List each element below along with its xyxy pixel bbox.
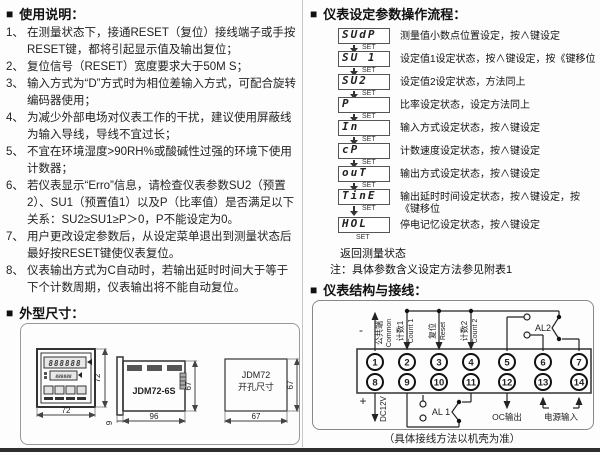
dc12v-label: DC12V (379, 395, 388, 421)
side-height-dim: 67 (184, 381, 193, 390)
down-arrow-icon (350, 211, 358, 216)
terminal-number: 8 (372, 378, 377, 389)
side-depth-dim: 9 (105, 420, 114, 425)
section-bullet-icon: ■ (6, 8, 13, 20)
contact-dot (557, 337, 561, 341)
display2-pointer-icon (78, 372, 82, 378)
flow-step-desc: 比率设定状态，设定方法同上 (400, 100, 598, 112)
cutout-model-label: JDM72 (242, 370, 271, 380)
terminal-number: 5 (504, 358, 510, 369)
usage-item-number: 6、 (6, 178, 27, 229)
power-input-wires (543, 398, 579, 408)
front-display-digits: 888888 (48, 359, 81, 368)
junction-dot (437, 309, 441, 313)
led-display-sudp: SUdP (338, 28, 390, 44)
led-text: TinE (339, 190, 389, 202)
terminal-number: 7 (576, 358, 581, 369)
dimensions-drawing: 888888 888888 72 72 JDM72-6 (21, 324, 299, 444)
terminal-number: 12 (502, 378, 513, 389)
usage-item-text: 用户更改设定参数后，从设定菜单退出到测量状态后最好按RESET键使仪表复位。 (27, 229, 298, 263)
led-text: In (339, 121, 389, 133)
side-width-dim: 96 (150, 412, 159, 421)
cutout-height-dim: 67 (286, 380, 295, 389)
section-bullet-icon: ■ (6, 307, 13, 319)
usage-item-number: 3、 (6, 76, 27, 110)
contact-dot (457, 400, 461, 404)
flow-step-desc: 测量值小数点位置设定，按∧键设定 (400, 31, 598, 43)
bottom-rule (0, 448, 600, 452)
terminal-row-bottom: 8 9 10 11 12 13 14 (367, 374, 587, 390)
usage-item: 5、不宜在环境湿度>90RH%或酸碱性过强的环境下使用计数器； (6, 144, 298, 178)
terminal-number: 1 (372, 358, 378, 369)
usage-item: 7、用户更改设定参数后，从设定菜单退出到测量状态后最好按RESET键使仪表复位。 (6, 229, 298, 263)
front-width-dim: 72 (62, 406, 71, 415)
dimensions-section-header: ■ 外型尺寸： (6, 303, 84, 322)
oc-output-label: OC输出 (492, 412, 522, 422)
junction-dot (469, 309, 473, 313)
set-key-label: SET (356, 234, 370, 241)
set-key-label: SET (362, 67, 376, 74)
set-key-label: SET (362, 205, 376, 212)
flow-step-desc: 计数速度设定状态，按∧键设定 (400, 146, 598, 158)
usage-item: 8、仪表输出方式为C自动时，若输出延时时间大于等于下个计数周期，仪表输出将不能自… (6, 263, 298, 297)
usage-item-number: 4、 (6, 110, 27, 144)
terminal-row-top: 1 2 3 4 5 6 7 (367, 354, 587, 370)
flow-step-desc: 停电记忆设定状态，按∧键设定 (400, 220, 598, 232)
count2-label-cn: 计数2 (459, 320, 469, 341)
usage-list: 1、在测量状态下，接通RESET（复位）接线端子或手按RESET键，都将引起显示… (6, 25, 298, 297)
flow-connector: SET (350, 206, 390, 215)
led-display-p: P (338, 97, 390, 113)
led-text: HOL (339, 218, 389, 230)
terminal-number: 11 (466, 378, 477, 389)
led-text: SU 1 (339, 52, 389, 64)
column-divider (302, 0, 303, 447)
led-display-time: TinE (338, 189, 390, 205)
flow-step-desc: 输入方式设定状态，按∧键设定 (400, 123, 598, 135)
led-display-hol: HOL (338, 217, 390, 233)
usage-item-text: 仪表输出方式为C自动时，若输出延时时间大于等于下个计数周期，仪表输出将不能自动复… (27, 263, 298, 297)
usage-item-number: 7、 (6, 229, 27, 263)
usage-item-text: 若仪表显示“Erro”信息，请检查仪表参数SU2（预置2）、SU1（预置值1）以… (27, 178, 298, 229)
display1-pointer-icon (87, 359, 92, 365)
flow-section-header: ■ 仪表设定参数操作流程： (310, 4, 466, 23)
count2-label-en: Count 2 (472, 319, 479, 344)
usage-item: 4、为减少外部电场对仪表工作的干扰，建议使用屏蔽线为输入导线，导线不宜过长； (6, 110, 298, 144)
power-input-label: 电源输入 (544, 412, 579, 422)
flow-title: 仪表设定参数操作流程： (323, 4, 466, 23)
dimensions-drawing-box: 888888 888888 72 72 JDM72-6 (20, 323, 300, 445)
usage-item-text: 输入方式为“D”方式时为相位差输入方式，可配合旋转编码器使用； (27, 76, 298, 110)
al2-label: AL2 (535, 323, 551, 333)
set-key-label: SET (362, 44, 376, 51)
flow-return-label: 返回测量状态 (340, 245, 406, 261)
usage-item-number: 5、 (6, 144, 27, 178)
set-key-label: SET (362, 136, 376, 143)
led-text: cP (339, 144, 389, 156)
usage-item: 3、输入方式为“D”方式时为相位差输入方式，可配合旋转编码器使用； (6, 76, 298, 110)
front-height-dim: 72 (93, 373, 102, 382)
usage-item-text: 复位信号（RESET）宽度要求大于50M S； (27, 59, 298, 76)
led-display-su2: SU2 (338, 74, 390, 90)
set-key-label: SET (362, 159, 376, 166)
common-label-en: Common (386, 319, 393, 348)
cutout-label: 开孔尺寸 (238, 381, 274, 392)
wiring-title: 仪表结构与接线： (323, 280, 427, 299)
usage-item: 6、若仪表显示“Erro”信息，请检查仪表参数SU2（预置2）、SU1（预置值1… (6, 178, 298, 229)
count1-label-en: Count 1 (408, 319, 415, 344)
wiring-diagram: - 公共端 Common 计数1 Count 1 复位 Reset 计数2 Co… (313, 301, 593, 429)
set-key-label: SET (362, 90, 376, 97)
led-display-in: In (338, 120, 390, 136)
usage-item: 2、复位信号（RESET）宽度要求大于50M S； (6, 59, 298, 76)
usage-item-text: 不宜在环境湿度>90RH%或酸碱性过强的环境下使用计数器； (27, 144, 298, 178)
section-bullet-icon: ■ (310, 284, 317, 296)
flow-step-desc: 设定值2设定状态，方法同上 (400, 77, 598, 89)
manual-page: ■ 使用说明： 1、在测量状态下，接通RESET（复位）接线端子或手按RESET… (0, 0, 600, 455)
set-key-label: SET (362, 182, 376, 189)
usage-item-text: 在测量状态下，接通RESET（复位）接线端子或手按RESET键，都将引起显示值及… (27, 25, 298, 59)
usage-item-number: 2、 (6, 59, 27, 76)
led-display-cp: cP (338, 143, 390, 159)
al1-label: AL 1 (432, 407, 450, 417)
common-label-cn: 公共端 (374, 321, 384, 345)
terminal-number: 4 (468, 358, 474, 369)
reset-label-en: Reset (440, 322, 447, 340)
terminal-number: 10 (434, 378, 445, 389)
led-text: SU2 (339, 75, 389, 87)
terminal-number: 3 (436, 358, 441, 369)
flow-step-desc: 设定值1设定状态，按∧键设定，按《键移位 (400, 54, 598, 66)
terminal-number: 14 (574, 378, 585, 389)
usage-item-text: 为减少外部电场对仪表工作的干扰，建议使用屏蔽线为输入导线，导线不宜过长； (27, 110, 298, 144)
terminal-number: 6 (540, 358, 545, 369)
contact-dot (457, 419, 461, 423)
count1-label-cn: 计数1 (395, 320, 405, 341)
wiring-diagram-box: - 公共端 Common 计数1 Count 1 复位 Reset 计数2 Co… (312, 300, 594, 430)
junction-dot (405, 309, 409, 313)
terminal-number: 2 (404, 358, 409, 369)
usage-item-number: 8、 (6, 263, 27, 297)
flow-step-desc: 输出延时时间设定状态，按∧键设定，按《键移位 (400, 192, 598, 216)
plus-sign: + (359, 394, 366, 408)
led-text: P (339, 98, 389, 110)
usage-item-number: 1、 (6, 25, 27, 59)
section-bullet-icon: ■ (310, 8, 317, 20)
side-model-label: JDM72-6S (132, 386, 175, 396)
set-key-label: SET (362, 113, 376, 120)
usage-item: 1、在测量状态下，接通RESET（复位）接线端子或手按RESET键，都将引起显示… (6, 25, 298, 59)
led-text: SUdP (339, 29, 389, 41)
flow-step-desc: 输出方式设定状态，按∧键设定 (400, 169, 598, 181)
reset-label-cn: 复位 (427, 323, 437, 339)
led-display-su1: SU 1 (338, 51, 390, 67)
minus-sign: - (359, 323, 363, 337)
terminal-number: 13 (538, 378, 549, 389)
usage-section-header: ■ 使用说明： (6, 4, 84, 23)
usage-title: 使用说明： (19, 4, 84, 23)
front-display2-digits: 888888 (55, 374, 72, 380)
led-display-out: ouT (338, 166, 390, 182)
flow-note: 注：具体参数含义设定方法参见附表1 (330, 261, 512, 277)
terminal-number: 9 (404, 378, 409, 389)
cutout-width-dim: 67 (252, 412, 261, 421)
led-text: ouT (339, 167, 389, 179)
wiring-section-header: ■ 仪表结构与接线： (310, 280, 427, 299)
dimensions-title: 外型尺寸： (19, 303, 84, 322)
wiring-caption: （具体接线方法以机壳为准） (312, 431, 592, 446)
contact-dot (557, 315, 561, 319)
